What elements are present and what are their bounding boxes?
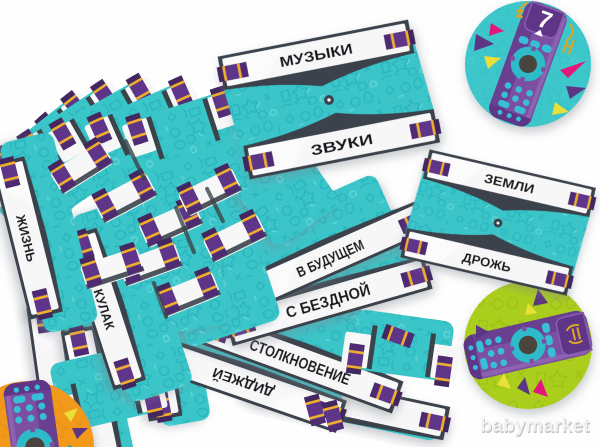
svg-text:babymarket: babymarket xyxy=(480,415,590,437)
